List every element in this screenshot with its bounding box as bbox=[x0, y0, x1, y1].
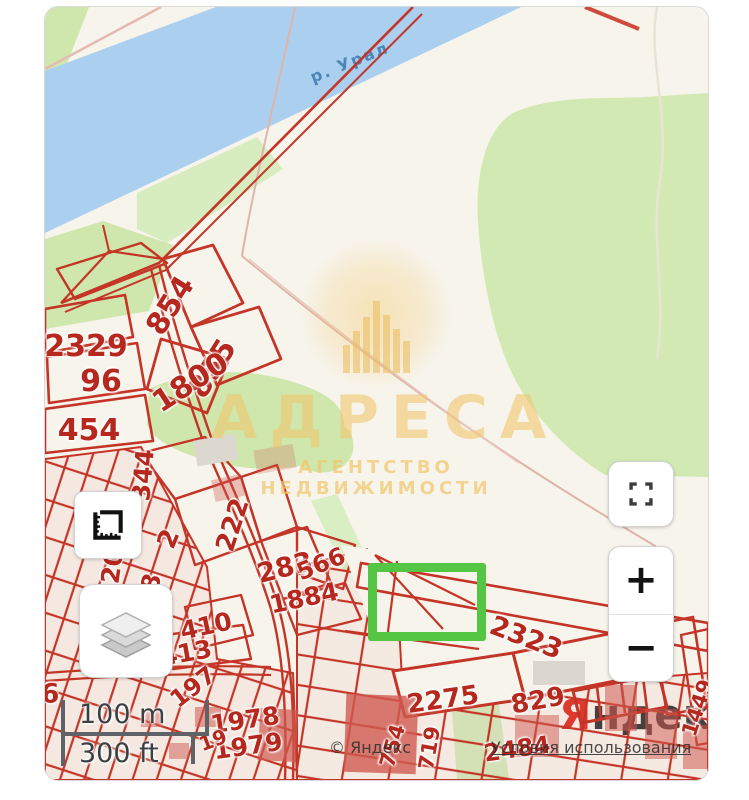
fullscreen-button[interactable] bbox=[608, 461, 674, 527]
measure-button[interactable] bbox=[74, 491, 142, 559]
zoom-out-button[interactable]: − bbox=[609, 615, 673, 682]
layer-stack-icon bbox=[94, 599, 158, 663]
map-canvas[interactable]: Яндекс р. Урал bbox=[44, 6, 709, 781]
layers-button[interactable] bbox=[79, 584, 173, 678]
vegetation-area bbox=[293, 421, 353, 472]
zoom-in-button[interactable]: + bbox=[609, 547, 673, 614]
terms-of-use-link[interactable]: Условия использования bbox=[491, 738, 691, 757]
fullscreen-corners-icon bbox=[624, 477, 658, 511]
selected-parcel-highlight bbox=[368, 563, 486, 641]
zoom-control: + − bbox=[608, 546, 674, 682]
ruler-icon bbox=[89, 506, 127, 544]
